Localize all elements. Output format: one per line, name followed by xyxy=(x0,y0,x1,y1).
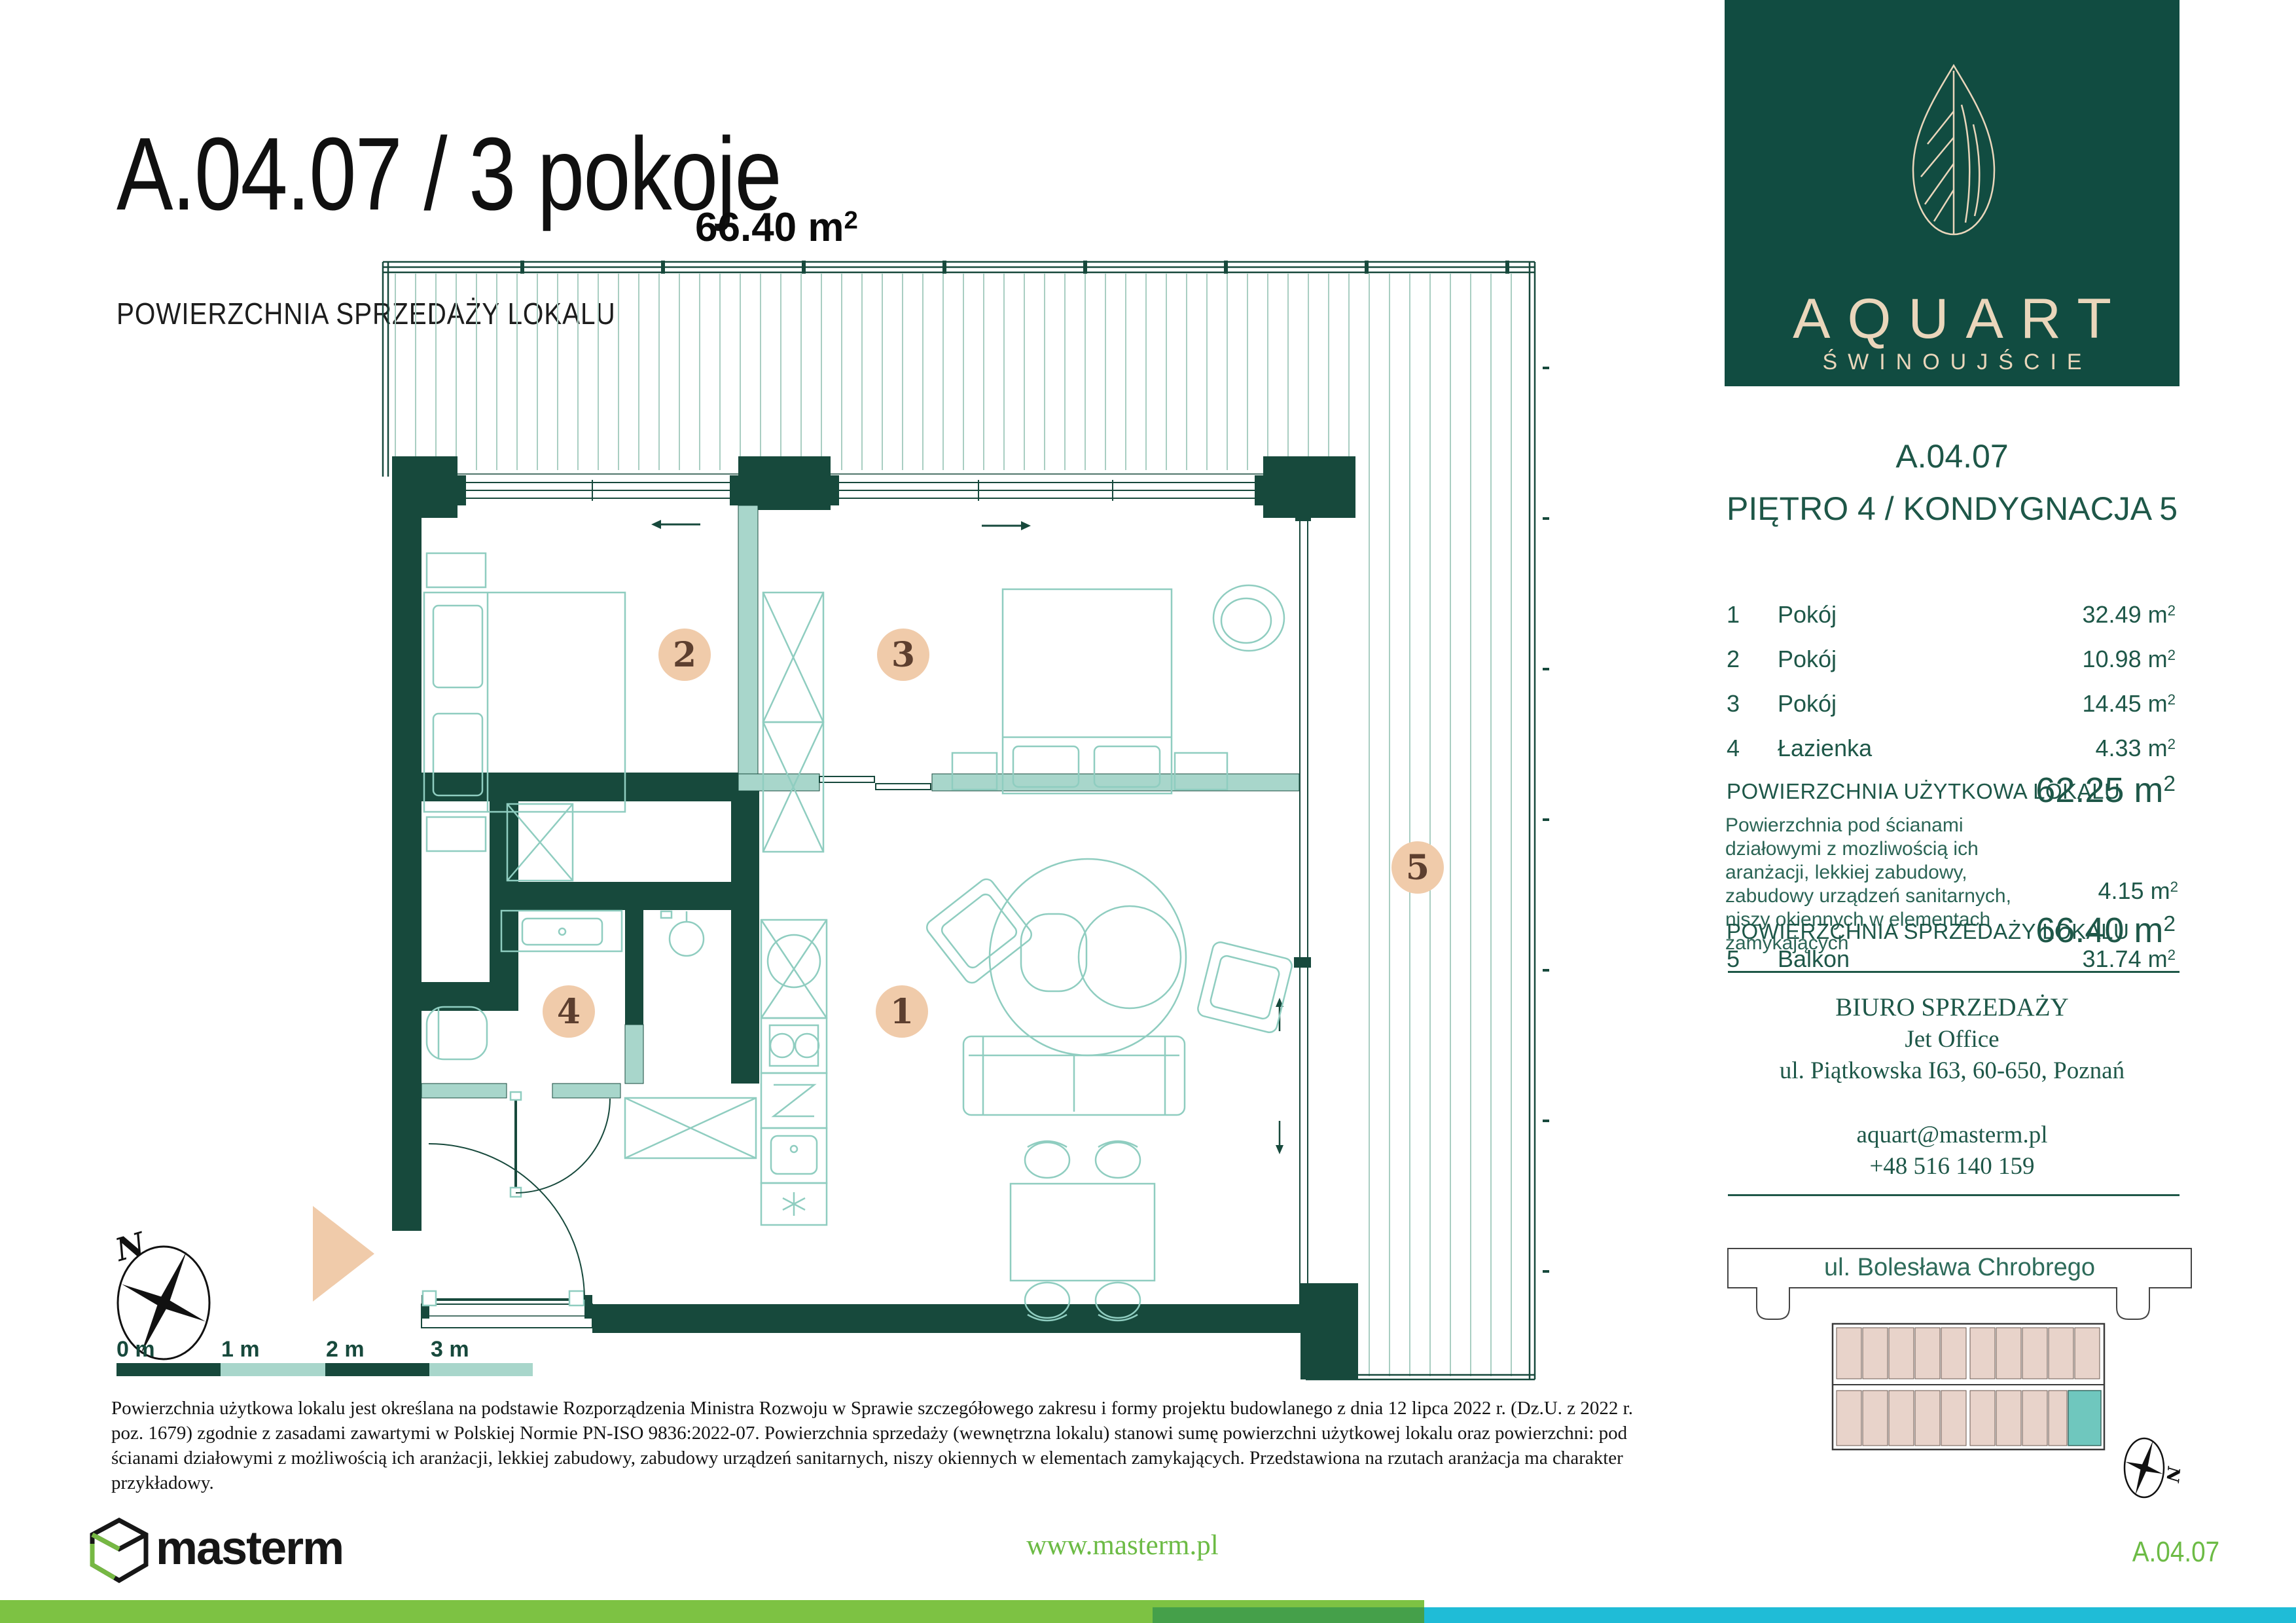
balcony-no: 5 xyxy=(1727,945,1740,973)
footer-bar-teal xyxy=(1424,1607,2296,1623)
room-area: 14.45 m2 xyxy=(2083,690,2176,718)
office-email: aquart@masterm.pl xyxy=(1725,1121,2179,1149)
room-area: 4.33 m2 xyxy=(2096,735,2176,762)
badge-room4: 4 xyxy=(543,985,595,1038)
room-name: Pokój xyxy=(1778,690,1837,718)
bed-room3 xyxy=(952,589,1227,793)
bathroom-door xyxy=(511,1092,610,1197)
room-area: 32.49 m2 xyxy=(2083,601,2176,629)
glass-wall xyxy=(1276,518,1308,1309)
footer-bar-darkgreen xyxy=(1153,1607,1424,1623)
footer-unit-code: A.04.07 xyxy=(2081,1536,2219,1569)
room-row-4: 4 Łazienka 4.33 m2 xyxy=(1725,735,2178,766)
dining-set xyxy=(1011,1141,1155,1321)
badge-room2: 2 xyxy=(658,629,711,681)
room-no: 3 xyxy=(1727,690,1740,718)
room-no: 1 xyxy=(1727,601,1740,629)
office-title: BIURO SPRZEDAŻY xyxy=(1725,993,2179,1022)
bed-room2 xyxy=(424,553,625,851)
svg-text:3 m: 3 m xyxy=(431,1337,469,1362)
armchair-room3 xyxy=(1213,585,1284,651)
svg-text:1 m: 1 m xyxy=(221,1337,260,1362)
badge-room5: 5 xyxy=(1391,841,1444,894)
divider-top xyxy=(1728,971,2179,973)
footer-website: www.masterm.pl xyxy=(936,1529,1309,1561)
kitchen-units xyxy=(625,920,827,1225)
room-no: 2 xyxy=(1727,646,1740,673)
room-no: 4 xyxy=(1727,735,1740,762)
building-outline xyxy=(1833,1324,2104,1450)
furniture xyxy=(422,553,1293,1328)
street-label: ul. Bolesława Chrobrego xyxy=(1824,1254,2095,1281)
svg-text:5: 5 xyxy=(1406,848,1429,888)
armchair-left xyxy=(924,876,1034,986)
brand-logo-box: AQUART ŚWINOUJŚCIE xyxy=(1725,0,2179,386)
office-company: Jet Office xyxy=(1725,1025,2179,1053)
entry-door xyxy=(422,1144,592,1328)
room-area: 10.98 m2 xyxy=(2083,646,2176,673)
svg-text:4: 4 xyxy=(557,992,581,1032)
room-name: Pokój xyxy=(1778,601,1837,629)
badge-room1: 1 xyxy=(876,985,928,1038)
masterm-logo-text: masterm xyxy=(156,1522,343,1575)
balcony-name: Balkon xyxy=(1778,945,1850,973)
site-plan: ul. Bolesława Chrobrego xyxy=(1728,1249,2191,1501)
svg-text:3: 3 xyxy=(891,635,915,675)
highlighted-unit xyxy=(2068,1391,2101,1446)
svg-text:2 m: 2 m xyxy=(326,1337,365,1362)
room-row-3: 3 Pokój 14.45 m2 xyxy=(1725,690,2178,721)
entrance-arrow xyxy=(313,1206,374,1302)
living-poufs xyxy=(1021,906,1181,1008)
svg-text:0 m: 0 m xyxy=(117,1337,155,1362)
site-compass: N xyxy=(2117,1434,2183,1501)
room-name: Pokój xyxy=(1778,646,1837,673)
divider-bottom xyxy=(1728,1194,2179,1196)
sofa xyxy=(963,1036,1185,1115)
walls-note-value: 4.15 m2 xyxy=(1725,877,2178,905)
svg-text:1: 1 xyxy=(890,992,914,1032)
brand-city: ŚWINOUJŚCIE xyxy=(1725,350,2179,375)
room-name: Łazienka xyxy=(1778,735,1872,762)
unit-code: A.04.07 xyxy=(1725,437,2179,475)
living-rug xyxy=(990,859,1186,1055)
balcony-area: 31.74 m2 xyxy=(2083,945,2176,973)
room-row-2: 2 Pokój 10.98 m2 xyxy=(1725,646,2178,677)
room-row-1: 1 Pokój 32.49 m2 xyxy=(1725,601,2178,632)
armchair-right xyxy=(1196,941,1293,1034)
leaf-icon xyxy=(1908,59,2000,255)
room-badges: 1 2 3 4 5 xyxy=(543,629,1444,1038)
balcony-hatch xyxy=(388,274,1521,1376)
svg-text:2: 2 xyxy=(673,635,696,675)
flyer-page: A.04.07 / 3 pokoje POWIERZCHNIA SPRZEDAŻ… xyxy=(0,0,2296,1623)
office-address: ul. Piątkowska I63, 60-650, Poznań xyxy=(1725,1057,2179,1085)
floor-info: PIĘTRO 4 / KONDYGNACJA 5 xyxy=(1725,490,2179,528)
brand-name: AQUART xyxy=(1725,287,2179,352)
compass-n-label: N xyxy=(111,1225,151,1269)
masterm-cube-icon xyxy=(88,1518,151,1583)
legal-disclaimer: Powierzchnia użytkowa lokalu jest określ… xyxy=(111,1396,1646,1495)
badge-room3: 3 xyxy=(877,629,929,681)
street-shape: ul. Bolesława Chrobrego xyxy=(1728,1249,2191,1319)
window-slide-arrows xyxy=(651,520,1031,530)
windows xyxy=(457,474,1263,530)
sale-value: 66.40 m2 xyxy=(2036,910,2176,951)
office-phone: +48 516 140 159 xyxy=(1725,1152,2179,1180)
usable-area-row: POWIERZCHNIA UŻYTKOWA LOKALU 62.25 m2 xyxy=(1725,770,2178,812)
wardrobe-room3 xyxy=(763,593,823,852)
usable-value: 62.25 m2 xyxy=(2036,770,2176,811)
site-compass-n: N xyxy=(2162,1465,2183,1484)
